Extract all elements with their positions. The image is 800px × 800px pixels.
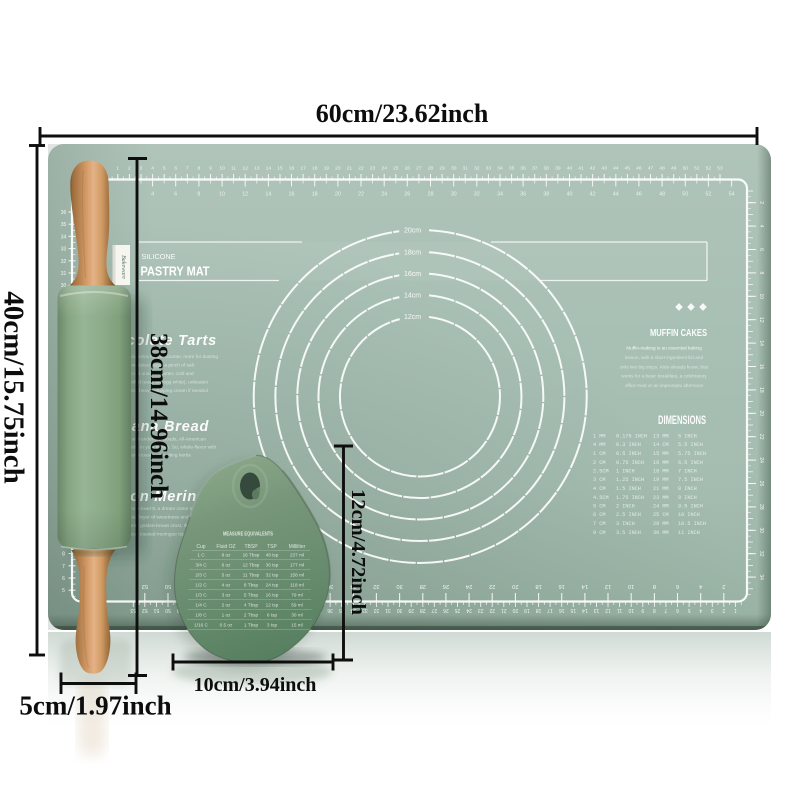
svg-text:50: 50	[682, 192, 688, 198]
svg-text:Muffin-making is an essential: Muffin-making is an essential baking	[626, 346, 702, 351]
svg-text:32: 32	[474, 192, 480, 198]
svg-text:6: 6	[758, 248, 764, 251]
svg-text:MUFFIN CAKES: MUFFIN CAKES	[650, 327, 707, 339]
svg-text:34: 34	[497, 192, 503, 198]
svg-text:17: 17	[547, 607, 553, 613]
svg-text:29: 29	[408, 607, 414, 613]
svg-text:1: 1	[116, 166, 119, 172]
svg-text:48: 48	[659, 166, 665, 172]
svg-text:32: 32	[758, 551, 764, 557]
svg-text:51: 51	[694, 166, 700, 172]
svg-text:46: 46	[636, 166, 642, 172]
svg-text:14: 14	[582, 607, 588, 613]
svg-text:16 tsp: 16 tsp	[266, 593, 279, 598]
svg-text:30: 30	[397, 607, 403, 613]
svg-text:1 MM: 1 MM	[593, 434, 605, 440]
svg-text:33: 33	[486, 166, 492, 172]
svg-text:2 oz: 2 oz	[222, 603, 232, 608]
svg-text:2: 2	[722, 583, 725, 589]
svg-text:TBSP: TBSP	[244, 544, 258, 550]
svg-text:23 MM: 23 MM	[653, 495, 669, 501]
svg-text:only two big steps. Kids alrea: only two big steps. Kids already know, t…	[620, 364, 709, 369]
svg-text:12: 12	[605, 607, 611, 613]
svg-text:15 MM: 15 MM	[653, 451, 669, 457]
svg-text:20: 20	[335, 166, 341, 172]
svg-text:20cm: 20cm	[404, 227, 421, 234]
svg-text:32: 32	[474, 166, 480, 172]
svg-text:Milliliter: Milliliter	[289, 544, 306, 550]
svg-text:36 tsp: 36 tsp	[266, 563, 279, 568]
svg-text:1.25 INCH: 1.25 INCH	[616, 477, 644, 483]
svg-text:12cm: 12cm	[404, 314, 421, 321]
svg-text:1 Tbsp: 1 Tbsp	[244, 623, 259, 628]
svg-text:14 CM: 14 CM	[653, 442, 669, 448]
svg-text:42: 42	[590, 166, 596, 172]
svg-text:22: 22	[358, 166, 364, 172]
svg-text:18: 18	[535, 583, 541, 589]
svg-text:38cm/14.96inch: 38cm/14.96inch	[145, 333, 172, 499]
svg-text:8: 8	[198, 166, 201, 172]
svg-text:6: 6	[174, 192, 177, 198]
svg-text:26: 26	[443, 607, 449, 613]
svg-text:Cup: Cup	[196, 544, 205, 550]
svg-text:1.75 INCH: 1.75 INCH	[616, 495, 644, 501]
svg-text:47: 47	[648, 166, 654, 172]
svg-text:16: 16	[558, 583, 564, 589]
svg-text:3 INCH: 3 INCH	[616, 521, 635, 527]
svg-text:28: 28	[420, 607, 426, 613]
svg-text:19: 19	[324, 166, 330, 172]
svg-text:12: 12	[605, 583, 611, 589]
svg-text:60cm/23.62inch: 60cm/23.62inch	[316, 99, 489, 128]
svg-text:12 tsp: 12 tsp	[266, 603, 279, 608]
svg-text:6 oz: 6 oz	[222, 563, 232, 568]
svg-text:3: 3	[140, 166, 143, 172]
svg-text:12: 12	[758, 317, 764, 323]
svg-text:42: 42	[590, 192, 596, 198]
svg-text:11 Tbsp: 11 Tbsp	[243, 573, 260, 578]
svg-text:17: 17	[300, 166, 306, 172]
svg-text:24: 24	[381, 166, 387, 172]
svg-text:18: 18	[312, 192, 318, 198]
svg-text:39: 39	[555, 166, 561, 172]
svg-text:14: 14	[265, 192, 271, 198]
svg-text:5: 5	[62, 588, 65, 594]
svg-text:27: 27	[431, 607, 437, 613]
svg-text:13: 13	[594, 607, 600, 613]
svg-text:52: 52	[142, 607, 148, 613]
svg-text:24 tsp: 24 tsp	[266, 583, 279, 588]
svg-text:25 CM: 25 CM	[653, 512, 669, 518]
svg-text:5cm/1.97inch: 5cm/1.97inch	[19, 691, 171, 721]
svg-text:18: 18	[312, 166, 318, 172]
svg-text:4: 4	[758, 225, 764, 228]
svg-text:37: 37	[532, 166, 538, 172]
svg-text:15: 15	[277, 166, 283, 172]
svg-text:0.5 oz: 0.5 oz	[220, 623, 233, 628]
svg-text:Bakeware: Bakeware	[120, 255, 126, 279]
svg-text:2.5CM: 2.5CM	[593, 469, 609, 475]
svg-text:28: 28	[420, 583, 426, 589]
svg-text:48: 48	[659, 192, 665, 198]
svg-text:9 INCH: 9 INCH	[678, 495, 697, 501]
svg-text:35: 35	[61, 222, 67, 228]
svg-text:2/3 C: 2/3 C	[195, 573, 207, 578]
svg-text:12 Tbsp: 12 Tbsp	[243, 563, 260, 568]
svg-text:DIMENSIONS: DIMENSIONS	[658, 415, 706, 427]
svg-text:22: 22	[489, 607, 495, 613]
svg-text:lesson, with a short ingredien: lesson, with a short ingredient list and	[625, 355, 704, 360]
svg-text:4 oz: 4 oz	[222, 583, 232, 588]
svg-text:24: 24	[758, 457, 764, 463]
svg-text:20: 20	[512, 607, 518, 613]
svg-text:TSP: TSP	[267, 544, 277, 550]
svg-text:22: 22	[489, 583, 495, 589]
svg-text:9 CM: 9 CM	[593, 530, 605, 536]
svg-text:36: 36	[327, 607, 333, 613]
svg-text:1/2 C: 1/2 C	[195, 583, 207, 588]
svg-text:0.3 INCH: 0.3 INCH	[616, 442, 641, 448]
svg-text:5 oz: 5 oz	[222, 573, 232, 578]
svg-text:23: 23	[478, 607, 484, 613]
svg-text:8: 8	[653, 583, 656, 589]
svg-text:34: 34	[758, 574, 764, 580]
svg-text:32 tsp: 32 tsp	[266, 573, 279, 578]
svg-text:50: 50	[165, 607, 171, 613]
svg-text:36: 36	[520, 192, 526, 198]
svg-text:4: 4	[151, 166, 154, 172]
svg-text:6: 6	[174, 166, 177, 172]
svg-text:3 oz: 3 oz	[222, 593, 232, 598]
svg-text:10 INCH: 10 INCH	[678, 512, 700, 518]
svg-text:8: 8	[197, 192, 200, 198]
svg-text:8 INCH: 8 INCH	[678, 486, 697, 492]
svg-text:5 Tbsp: 5 Tbsp	[244, 593, 259, 598]
svg-text:24: 24	[381, 192, 387, 198]
svg-text:52: 52	[705, 192, 711, 198]
svg-text:32: 32	[373, 607, 379, 613]
svg-text:1 C: 1 C	[197, 553, 205, 558]
svg-text:2: 2	[758, 201, 764, 204]
svg-text:30 ml: 30 ml	[291, 613, 302, 618]
svg-text:2 CM: 2 CM	[593, 460, 605, 466]
svg-text:23: 23	[370, 166, 376, 172]
svg-text:6.5 INCH: 6.5 INCH	[678, 460, 703, 466]
svg-text:30 MM: 30 MM	[653, 530, 669, 536]
svg-text:4: 4	[699, 607, 702, 613]
svg-text:34: 34	[61, 234, 67, 240]
svg-text:6: 6	[62, 576, 65, 582]
svg-text:13: 13	[254, 166, 260, 172]
svg-text:21 MM: 21 MM	[653, 486, 669, 492]
svg-text:16: 16	[559, 607, 565, 613]
svg-text:1 oz: 1 oz	[222, 613, 232, 618]
svg-text:20: 20	[758, 411, 764, 417]
svg-text:31: 31	[61, 271, 67, 277]
svg-text:10.5 INCH: 10.5 INCH	[678, 521, 706, 527]
svg-text:11: 11	[617, 607, 622, 613]
svg-text:33: 33	[61, 247, 67, 253]
svg-text:6 CM: 6 CM	[593, 512, 605, 518]
svg-text:30: 30	[451, 166, 457, 172]
svg-text:1 CM: 1 CM	[593, 451, 605, 457]
svg-text:10: 10	[628, 583, 634, 589]
svg-text:7: 7	[186, 166, 189, 172]
svg-text:38: 38	[544, 166, 550, 172]
svg-text:27: 27	[416, 166, 422, 172]
svg-text:works for a basic breakfast, a: works for a basic breakfast, a celebrato…	[621, 374, 707, 379]
svg-text:118 ml: 118 ml	[290, 583, 304, 588]
svg-text:30: 30	[451, 192, 457, 198]
svg-text:38: 38	[543, 192, 549, 198]
svg-text:SILICONE: SILICONE	[142, 252, 176, 261]
svg-text:46: 46	[636, 192, 642, 198]
svg-text:4.5CM: 4.5CM	[593, 495, 609, 501]
svg-text:28 MM: 28 MM	[653, 521, 669, 527]
svg-text:20: 20	[335, 192, 341, 198]
svg-text:32: 32	[373, 583, 379, 589]
svg-text:3 tsp: 3 tsp	[267, 623, 278, 628]
svg-text:14: 14	[581, 583, 588, 589]
svg-text:40cm/15.75inch: 40cm/15.75inch	[0, 291, 30, 484]
svg-text:16: 16	[758, 364, 764, 370]
svg-text:9.5 INCH: 9.5 INCH	[678, 504, 703, 510]
svg-text:10: 10	[219, 166, 225, 172]
svg-text:1/4 C: 1/4 C	[195, 603, 207, 608]
svg-text:5: 5	[163, 166, 166, 172]
svg-text:158 ml: 158 ml	[290, 573, 304, 578]
svg-text:3: 3	[711, 607, 714, 613]
svg-text:0.5 INCH: 0.5 INCH	[616, 451, 641, 457]
svg-text:20: 20	[512, 583, 518, 589]
svg-text:PASTRY MAT: PASTRY MAT	[141, 264, 210, 279]
svg-text:14: 14	[266, 166, 272, 172]
svg-text:32: 32	[61, 259, 67, 265]
svg-text:16 MM: 16 MM	[653, 460, 669, 466]
svg-text:14cm: 14cm	[404, 292, 421, 299]
svg-text:3.5 INCH: 3.5 INCH	[616, 530, 641, 536]
svg-text:26: 26	[404, 192, 410, 198]
svg-text:18: 18	[758, 387, 764, 393]
svg-text:3 CM: 3 CM	[593, 477, 605, 483]
svg-text:237 ml: 237 ml	[290, 553, 304, 558]
svg-text:26: 26	[443, 583, 449, 589]
svg-text:25: 25	[455, 607, 461, 613]
svg-text:16: 16	[289, 166, 295, 172]
svg-text:30: 30	[758, 528, 764, 534]
svg-text:11: 11	[231, 166, 236, 172]
svg-text:21: 21	[501, 607, 507, 613]
svg-text:44: 44	[613, 192, 619, 198]
svg-text:24: 24	[466, 607, 472, 613]
svg-text:5.75 INCH: 5.75 INCH	[678, 451, 706, 457]
svg-text:49: 49	[671, 166, 677, 172]
svg-text:7 INCH: 7 INCH	[678, 469, 697, 475]
svg-text:5: 5	[687, 607, 690, 613]
svg-text:19 MM: 19 MM	[653, 477, 669, 483]
svg-text:5.5 INCH: 5.5 INCH	[678, 442, 703, 448]
svg-text:8: 8	[758, 272, 764, 275]
svg-text:2: 2	[128, 166, 131, 172]
svg-text:16cm: 16cm	[404, 271, 421, 278]
svg-text:44: 44	[613, 166, 619, 172]
svg-text:6: 6	[676, 607, 679, 613]
svg-text:0.175 INCH: 0.175 INCH	[616, 434, 647, 440]
svg-text:3/4 C: 3/4 C	[195, 563, 207, 568]
svg-text:6 tsp: 6 tsp	[267, 613, 278, 618]
svg-text:31: 31	[385, 607, 391, 613]
svg-text:7: 7	[664, 607, 667, 613]
svg-text:12: 12	[242, 166, 248, 172]
svg-text:2 Tbsp: 2 Tbsp	[244, 613, 259, 618]
svg-text:13 MM: 13 MM	[653, 434, 669, 440]
svg-text:9: 9	[641, 607, 644, 613]
svg-text:1/16 C: 1/16 C	[194, 623, 208, 628]
svg-text:2: 2	[722, 607, 725, 613]
svg-text:59 ml: 59 ml	[291, 603, 302, 608]
svg-text:40: 40	[567, 166, 573, 172]
svg-text:5 CM: 5 CM	[593, 504, 605, 510]
svg-text:2.5 INCH: 2.5 INCH	[616, 512, 641, 518]
svg-text:51: 51	[153, 607, 159, 613]
svg-text:30: 30	[396, 583, 402, 589]
svg-text:7 CM: 7 CM	[593, 521, 605, 527]
svg-text:36: 36	[520, 166, 526, 172]
svg-text:34: 34	[497, 166, 503, 172]
svg-text:53: 53	[130, 607, 136, 613]
svg-text:18 MM: 18 MM	[653, 469, 669, 475]
svg-text:41: 41	[578, 166, 584, 172]
svg-text:12: 12	[242, 192, 248, 198]
svg-text:14: 14	[758, 340, 764, 346]
svg-text:10: 10	[628, 607, 634, 613]
svg-text:4 MM: 4 MM	[593, 442, 605, 448]
svg-text:8: 8	[62, 552, 65, 558]
svg-text:6: 6	[676, 583, 679, 589]
svg-text:45: 45	[625, 166, 631, 172]
svg-text:40: 40	[567, 192, 573, 198]
svg-text:28: 28	[428, 192, 434, 198]
svg-text:10cm/3.94inch: 10cm/3.94inch	[194, 674, 317, 696]
svg-text:177 ml: 177 ml	[290, 563, 304, 568]
svg-text:Fluid OZ: Fluid OZ	[216, 544, 235, 550]
svg-text:50: 50	[683, 166, 689, 172]
svg-text:1 INCH: 1 INCH	[616, 469, 635, 475]
svg-text:21: 21	[347, 166, 353, 172]
svg-text:MEASURE EQUIVALENTS: MEASURE EQUIVALENTS	[223, 532, 274, 538]
svg-text:1.5 INCH: 1.5 INCH	[616, 486, 641, 492]
svg-text:1/3 C: 1/3 C	[195, 593, 207, 598]
svg-text:52: 52	[142, 583, 148, 589]
svg-text:7.5 INCH: 7.5 INCH	[678, 477, 703, 483]
svg-text:7: 7	[62, 564, 65, 570]
svg-text:22: 22	[758, 434, 764, 440]
svg-text:18: 18	[536, 607, 542, 613]
svg-text:8: 8	[653, 607, 656, 613]
svg-text:1: 1	[734, 607, 737, 613]
svg-text:4: 4	[151, 192, 154, 198]
svg-text:office treat or an impromptu a: office treat or an impromptu afternoon	[625, 383, 704, 388]
svg-text:43: 43	[601, 166, 607, 172]
svg-text:10: 10	[219, 192, 225, 198]
svg-text:24: 24	[465, 583, 472, 589]
svg-text:8 Tbsp: 8 Tbsp	[244, 583, 259, 588]
svg-text:26: 26	[405, 166, 411, 172]
svg-text:31: 31	[462, 166, 468, 172]
svg-text:4 Tbsp: 4 Tbsp	[244, 603, 259, 608]
svg-text:28: 28	[758, 504, 764, 510]
svg-text:52: 52	[706, 166, 712, 172]
svg-text:0.75 INCH: 0.75 INCH	[616, 460, 644, 466]
svg-text:9: 9	[209, 166, 212, 172]
svg-text:19: 19	[524, 607, 530, 613]
svg-text:29: 29	[439, 166, 445, 172]
svg-text:53: 53	[717, 166, 723, 172]
svg-text:24 MM: 24 MM	[653, 504, 669, 510]
svg-text:25: 25	[393, 166, 399, 172]
svg-text:79 ml: 79 ml	[291, 593, 302, 598]
svg-text:2 INCH: 2 INCH	[616, 504, 635, 510]
svg-text:11 INCH: 11 INCH	[678, 530, 700, 536]
svg-text:8 oz: 8 oz	[222, 553, 232, 558]
svg-text:22: 22	[358, 192, 364, 198]
svg-text:1/8 C: 1/8 C	[195, 613, 207, 618]
svg-text:48 tsp: 48 tsp	[266, 553, 279, 558]
svg-text:28: 28	[428, 166, 434, 172]
svg-text:10: 10	[758, 294, 764, 300]
svg-text:54: 54	[729, 192, 735, 198]
svg-text:15: 15	[570, 607, 576, 613]
svg-text:4 CM: 4 CM	[593, 486, 605, 492]
svg-text:15 ml: 15 ml	[291, 623, 302, 628]
svg-text:12cm/4.72inch: 12cm/4.72inch	[347, 489, 369, 615]
svg-text:36: 36	[61, 210, 67, 216]
svg-text:16: 16	[289, 192, 295, 198]
svg-text:26: 26	[758, 481, 764, 487]
svg-text:35: 35	[509, 166, 515, 172]
svg-text:5 INCH: 5 INCH	[678, 434, 697, 440]
svg-text:16 Tbsp: 16 Tbsp	[243, 553, 260, 558]
svg-text:18cm: 18cm	[404, 249, 421, 256]
